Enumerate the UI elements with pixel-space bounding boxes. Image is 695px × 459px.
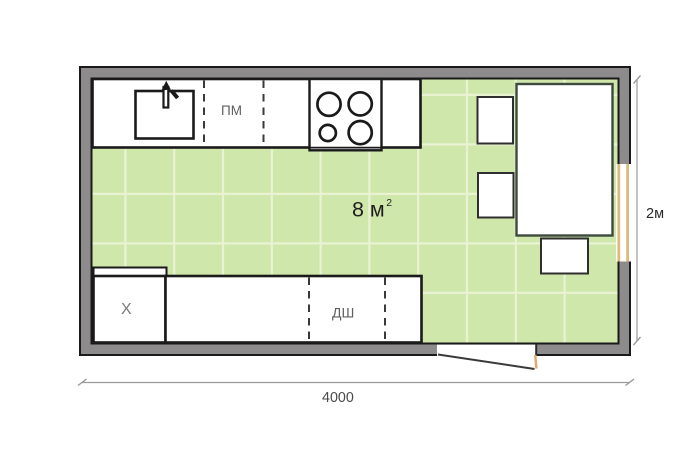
- svg-text:ДШ: ДШ: [332, 305, 354, 321]
- svg-text:X: X: [121, 301, 132, 318]
- svg-text:4000: 4000: [322, 390, 354, 406]
- svg-text:ПМ: ПМ: [221, 103, 242, 118]
- svg-text:2м: 2м: [646, 206, 664, 222]
